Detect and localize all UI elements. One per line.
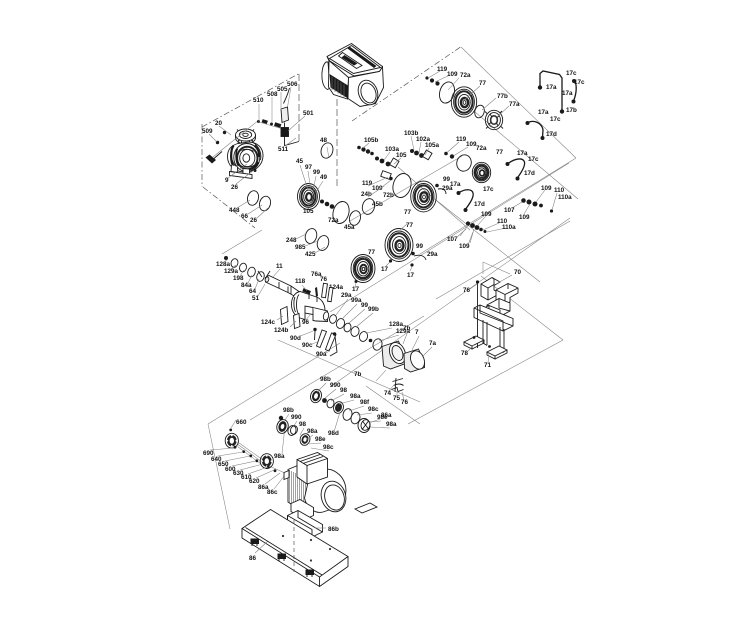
svg-text:109: 109 <box>481 211 492 218</box>
svg-text:26: 26 <box>231 184 239 191</box>
svg-text:26: 26 <box>250 217 258 224</box>
svg-text:49: 49 <box>320 174 328 181</box>
svg-text:7b: 7b <box>354 371 362 378</box>
svg-text:17a: 17a <box>546 84 557 91</box>
svg-text:99: 99 <box>416 243 424 250</box>
svg-text:98c: 98c <box>323 444 334 451</box>
svg-text:11: 11 <box>276 263 283 270</box>
svg-text:77: 77 <box>406 222 414 229</box>
svg-text:98: 98 <box>340 387 348 394</box>
svg-text:90d: 90d <box>290 335 301 342</box>
svg-text:76: 76 <box>320 276 328 283</box>
svg-text:77a: 77a <box>509 101 520 108</box>
svg-text:86c: 86c <box>267 489 278 496</box>
svg-text:24b: 24b <box>361 191 372 198</box>
svg-text:110a: 110a <box>558 194 572 201</box>
svg-text:96: 96 <box>302 319 310 326</box>
svg-text:90c: 90c <box>302 342 313 349</box>
svg-text:660: 660 <box>236 419 247 426</box>
svg-text:17d: 17d <box>546 131 557 138</box>
svg-text:64: 64 <box>249 288 257 295</box>
svg-text:511: 511 <box>278 146 289 153</box>
svg-text:17c: 17c <box>574 79 585 86</box>
svg-text:7b: 7b <box>403 325 411 332</box>
svg-text:98f: 98f <box>360 399 370 406</box>
svg-text:110: 110 <box>554 187 565 194</box>
svg-text:109: 109 <box>519 214 530 221</box>
svg-text:98c: 98c <box>368 406 379 413</box>
svg-text:17a: 17a <box>538 109 549 116</box>
svg-text:45: 45 <box>296 158 304 165</box>
svg-text:98b: 98b <box>283 407 294 414</box>
svg-text:45b: 45b <box>372 201 383 208</box>
svg-text:76: 76 <box>401 399 409 406</box>
svg-text:17: 17 <box>352 286 360 293</box>
svg-text:7a: 7a <box>429 340 437 347</box>
svg-text:118: 118 <box>295 278 306 285</box>
svg-text:7: 7 <box>415 329 419 336</box>
svg-text:77b: 77b <box>497 93 508 100</box>
svg-text:105b: 105b <box>364 137 379 144</box>
svg-text:17: 17 <box>381 266 389 273</box>
svg-text:128a: 128a <box>389 321 404 328</box>
svg-text:9: 9 <box>225 177 229 184</box>
svg-text:45a: 45a <box>344 224 355 231</box>
svg-text:86a: 86a <box>381 412 392 419</box>
svg-text:99b: 99b <box>368 306 379 313</box>
svg-text:17a: 17a <box>450 181 461 188</box>
svg-text:110a: 110a <box>502 224 516 231</box>
svg-text:17d: 17d <box>474 201 485 208</box>
svg-text:17c: 17c <box>550 116 561 123</box>
svg-text:98a: 98a <box>307 428 318 435</box>
svg-text:66: 66 <box>241 213 249 220</box>
svg-text:990: 990 <box>291 414 302 421</box>
svg-text:72a: 72a <box>476 145 487 152</box>
svg-text:248: 248 <box>286 237 297 244</box>
svg-text:72a: 72a <box>460 72 471 79</box>
svg-text:425: 425 <box>305 251 316 258</box>
svg-text:77: 77 <box>368 249 376 256</box>
svg-text:501: 501 <box>303 110 314 117</box>
svg-text:98a: 98a <box>274 453 285 460</box>
svg-text:98: 98 <box>299 421 307 428</box>
svg-text:198: 198 <box>233 275 244 282</box>
svg-text:76: 76 <box>463 287 471 294</box>
svg-text:17c: 17c <box>528 156 539 163</box>
svg-text:77: 77 <box>479 80 487 87</box>
svg-text:72a: 72a <box>328 217 339 224</box>
svg-text:109: 109 <box>541 185 552 192</box>
svg-text:17c: 17c <box>566 70 577 77</box>
svg-text:98e: 98e <box>315 436 326 443</box>
svg-text:98a: 98a <box>386 421 397 428</box>
svg-text:78: 78 <box>461 350 469 357</box>
svg-text:128a: 128a <box>216 261 231 268</box>
svg-text:105a: 105a <box>425 142 440 149</box>
svg-text:17c: 17c <box>483 186 494 193</box>
svg-text:74: 74 <box>384 390 392 397</box>
svg-text:17a: 17a <box>517 150 528 157</box>
svg-text:17d: 17d <box>524 170 535 177</box>
svg-text:448: 448 <box>229 207 240 214</box>
svg-text:509: 509 <box>202 128 213 135</box>
svg-text:90a: 90a <box>316 351 327 358</box>
svg-text:124c: 124c <box>261 319 276 326</box>
svg-text:105: 105 <box>303 208 314 215</box>
svg-text:107: 107 <box>504 207 515 214</box>
svg-text:105: 105 <box>396 152 407 159</box>
svg-text:124b: 124b <box>274 327 289 334</box>
svg-text:86: 86 <box>249 555 257 562</box>
svg-text:109: 109 <box>447 71 458 78</box>
svg-text:86b: 86b <box>328 526 339 533</box>
svg-text:17a: 17a <box>562 90 573 97</box>
svg-text:97: 97 <box>305 164 313 171</box>
svg-text:70: 70 <box>514 269 522 276</box>
svg-text:29a: 29a <box>427 251 438 258</box>
svg-text:506: 506 <box>287 81 298 88</box>
svg-text:17: 17 <box>407 272 415 279</box>
svg-text:107: 107 <box>447 236 458 243</box>
svg-text:71: 71 <box>484 362 492 369</box>
svg-text:20: 20 <box>215 120 223 127</box>
svg-text:77: 77 <box>496 149 504 156</box>
svg-text:985: 985 <box>295 244 306 251</box>
svg-text:98d: 98d <box>328 430 339 437</box>
svg-text:510: 510 <box>253 97 264 104</box>
svg-text:17b: 17b <box>566 107 577 114</box>
svg-text:72b: 72b <box>383 192 394 199</box>
svg-text:77: 77 <box>404 209 412 216</box>
svg-text:51: 51 <box>252 295 260 302</box>
